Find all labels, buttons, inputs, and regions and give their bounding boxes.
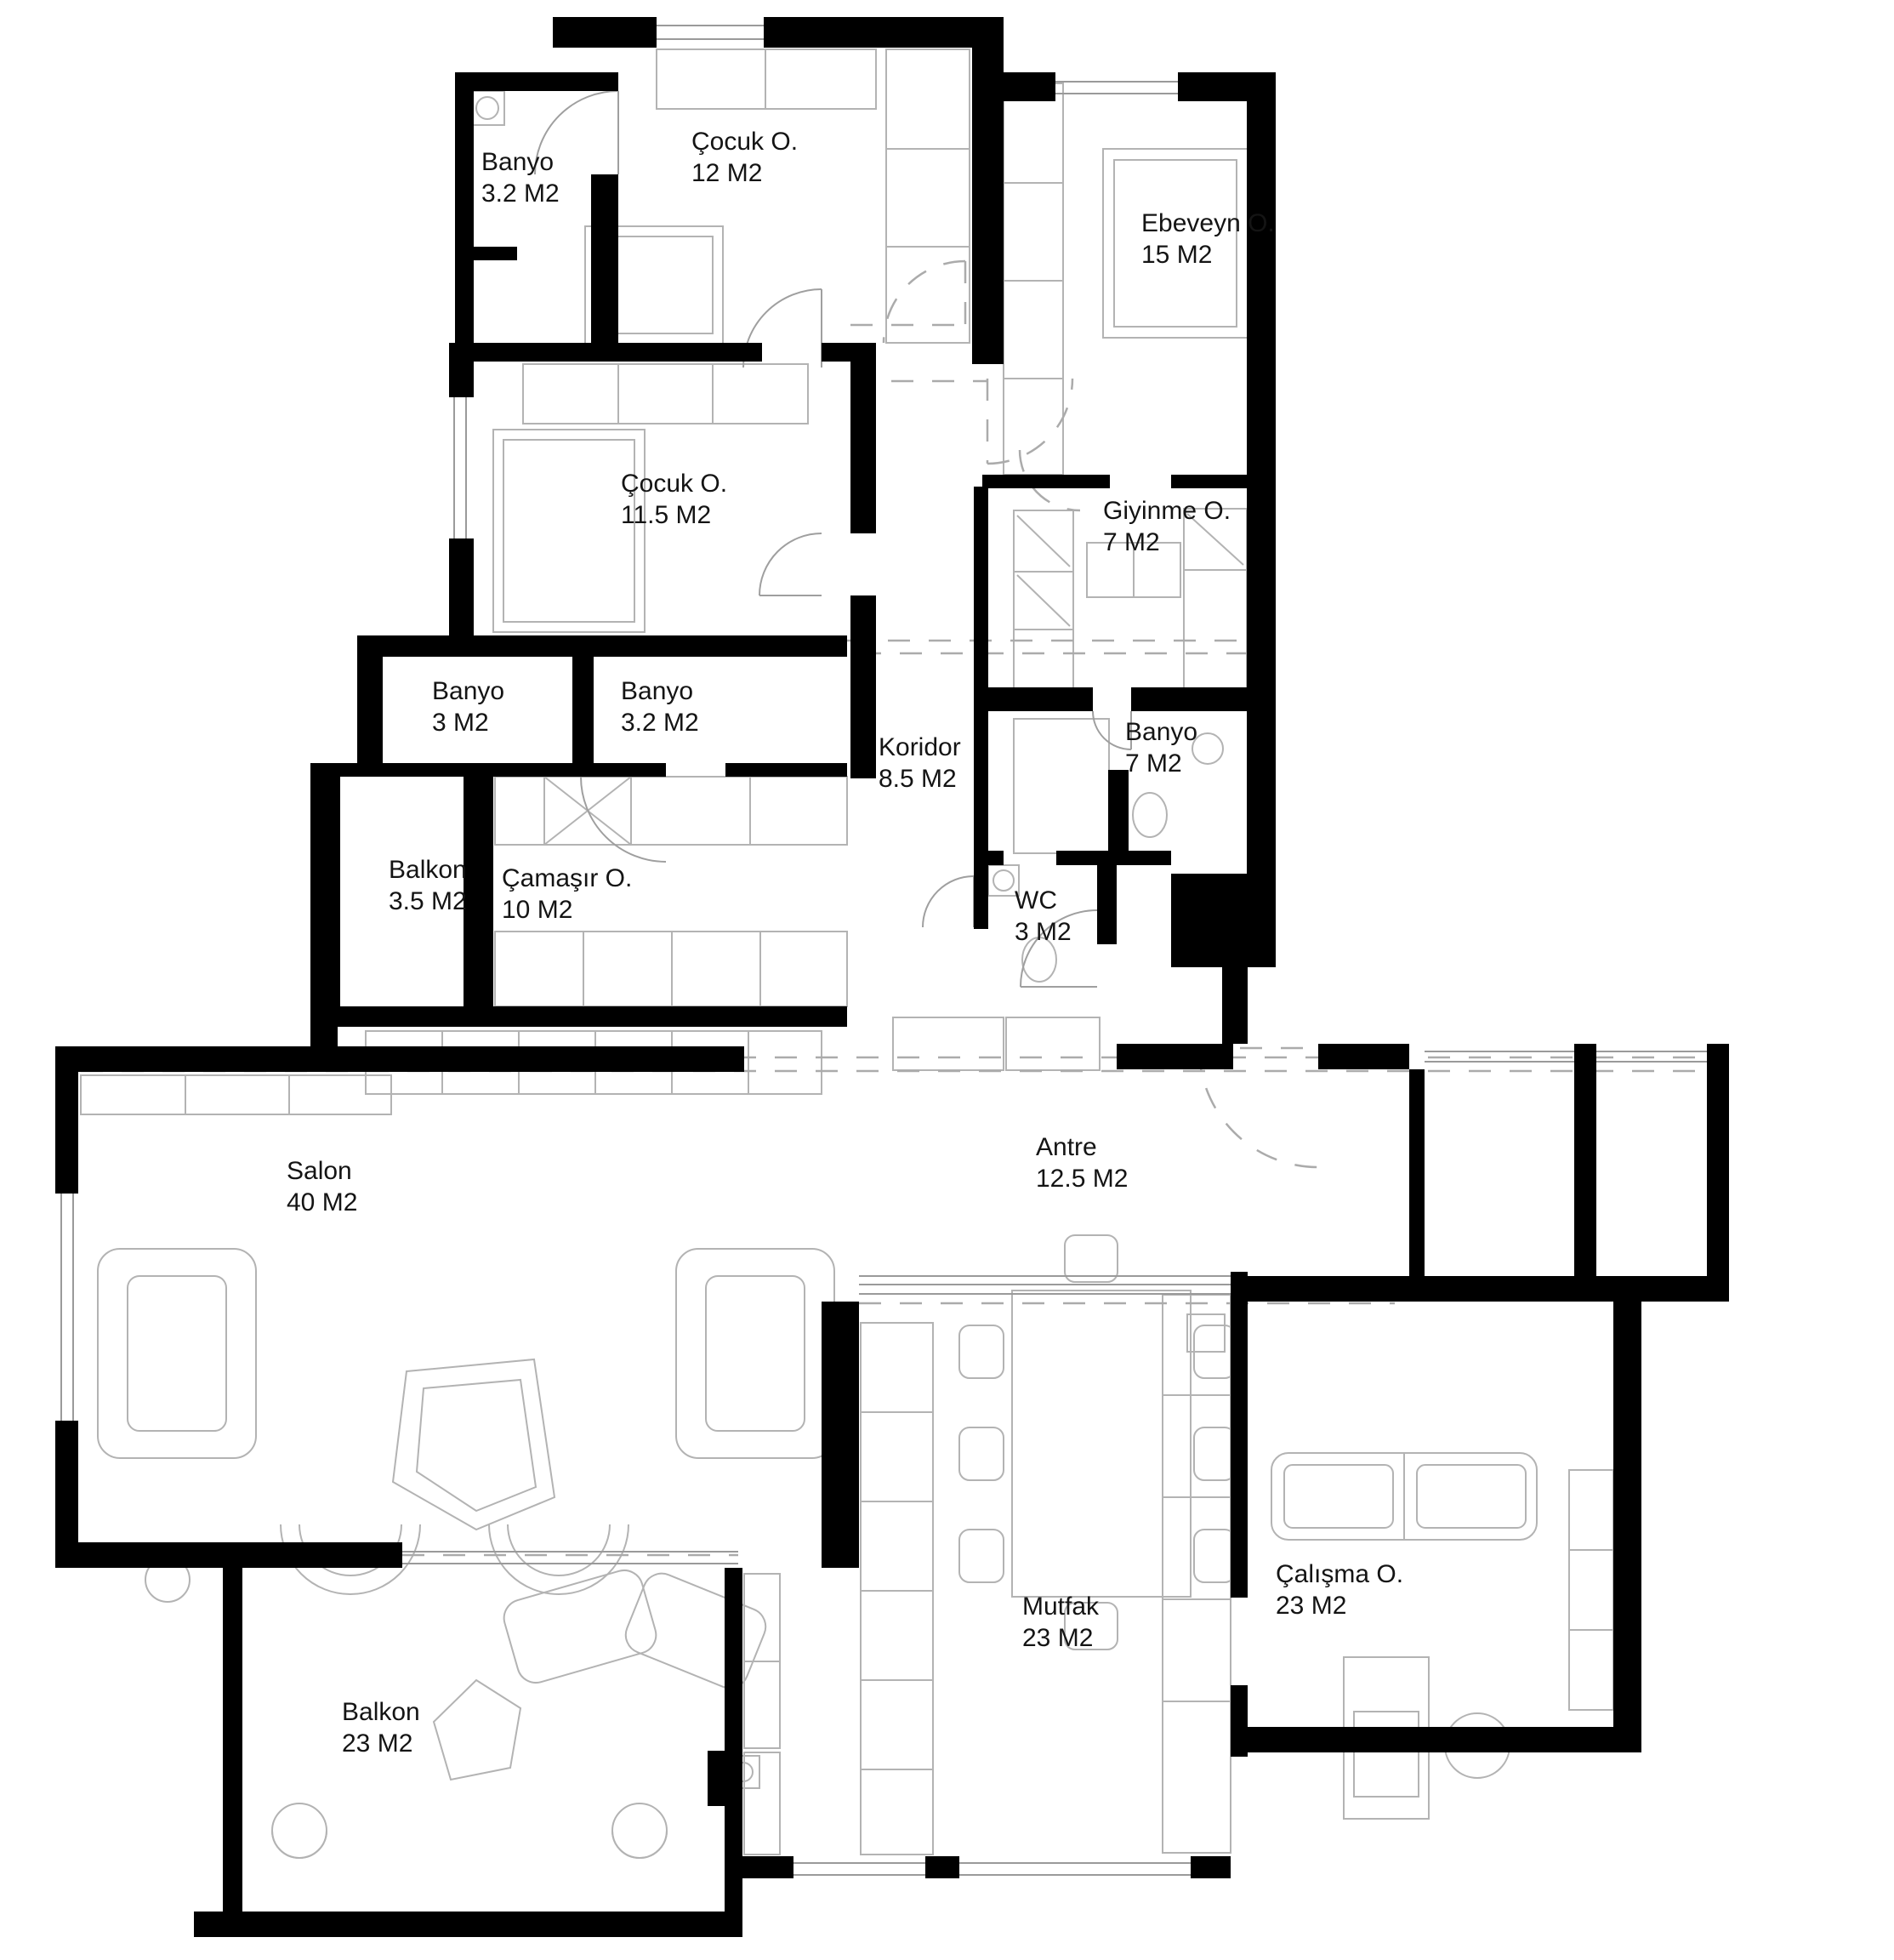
room-area: 15 M2 (1141, 239, 1275, 271)
room-name: Ebeveyn O. (1141, 208, 1275, 239)
room-area: 7 M2 (1103, 527, 1231, 558)
room-label-koridor: Koridor8.5 M2 (879, 732, 961, 795)
room-name: Mutfak (1022, 1591, 1099, 1622)
room-area: 12 M2 (691, 157, 798, 189)
room-area: 7 M2 (1125, 748, 1197, 779)
room-name: Antre (1036, 1131, 1128, 1163)
windows (61, 26, 1707, 1875)
room-area: 3.5 M2 (389, 886, 467, 917)
room-name: Salon (287, 1155, 357, 1187)
room-label-banyo-3: Banyo3 M2 (432, 675, 504, 738)
room-label-mutfak: Mutfak23 M2 (1022, 1591, 1099, 1654)
room-area: 3 M2 (1015, 916, 1072, 948)
room-name: WC (1015, 885, 1072, 916)
room-label-cocuk-odasi-2: Çocuk O.11.5 M2 (621, 468, 727, 531)
room-area: 23 M2 (342, 1728, 420, 1759)
room-label-banyo-7: Banyo7 M2 (1125, 716, 1197, 779)
room-name: Balkon (389, 854, 467, 886)
room-label-antre: Antre12.5 M2 (1036, 1131, 1128, 1194)
room-label-calisma-odasi: Çalışma O.23 M2 (1276, 1558, 1403, 1621)
room-label-ebeveyn-odasi: Ebeveyn O.15 M2 (1141, 208, 1275, 271)
room-area: 40 M2 (287, 1187, 357, 1218)
room-label-balkon-kucuk: Balkon3.5 M2 (389, 854, 467, 917)
room-label-balkon-buyuk: Balkon23 M2 (342, 1696, 420, 1759)
room-label-wc: WC3 M2 (1015, 885, 1072, 948)
room-name: Koridor (879, 732, 961, 763)
room-label-cocuk-odasi-1: Çocuk O.12 M2 (691, 126, 798, 189)
room-name: Balkon (342, 1696, 420, 1728)
room-label-banyo-32: Banyo3.2 M2 (621, 675, 699, 738)
room-area: 3.2 M2 (481, 178, 560, 209)
room-label-camasir-odasi: Çamaşır O.10 M2 (502, 863, 632, 926)
room-area: 3 M2 (432, 707, 504, 738)
floor-plan-drawing (0, 0, 1894, 1960)
room-name: Giyinme O. (1103, 495, 1231, 527)
room-name: Çocuk O. (621, 468, 727, 499)
room-name: Çamaşır O. (502, 863, 632, 894)
room-area: 23 M2 (1276, 1590, 1403, 1621)
room-name: Banyo (432, 675, 504, 707)
room-area: 12.5 M2 (1036, 1163, 1128, 1194)
room-area: 10 M2 (502, 894, 632, 926)
room-label-giyinme-odasi: Giyinme O.7 M2 (1103, 495, 1231, 558)
room-label-banyo-top-left: Banyo3.2 M2 (481, 146, 560, 209)
room-name: Çocuk O. (691, 126, 798, 157)
room-label-salon: Salon40 M2 (287, 1155, 357, 1218)
room-name: Çalışma O. (1276, 1558, 1403, 1590)
room-name: Banyo (481, 146, 560, 178)
room-area: 11.5 M2 (621, 499, 727, 531)
floor-plan: Banyo3.2 M2 Çocuk O.12 M2 Ebeveyn O.15 M… (0, 0, 1894, 1960)
room-area: 23 M2 (1022, 1622, 1099, 1654)
room-name: Banyo (621, 675, 699, 707)
room-area: 3.2 M2 (621, 707, 699, 738)
room-name: Banyo (1125, 716, 1197, 748)
room-area: 8.5 M2 (879, 763, 961, 795)
